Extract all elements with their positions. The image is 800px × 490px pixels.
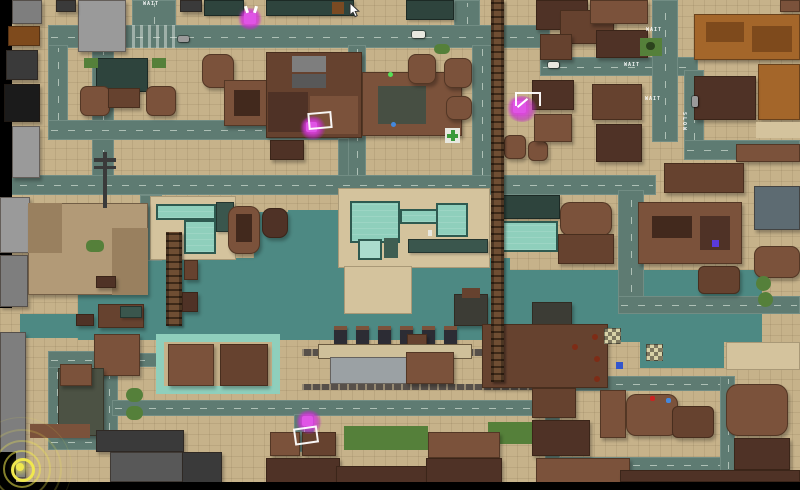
tile-bldg xyxy=(454,294,488,326)
tile-bldg xyxy=(532,302,572,326)
tile-rect xyxy=(462,288,480,298)
tile-rect xyxy=(616,362,623,369)
tile-bldg xyxy=(8,26,40,46)
tile-rect xyxy=(646,42,655,50)
tile-rect xyxy=(594,356,600,362)
tile-roof xyxy=(406,0,454,20)
tile-rect xyxy=(236,214,252,242)
tile-bldg xyxy=(0,255,28,307)
tile-bldg xyxy=(56,0,76,12)
car xyxy=(692,96,698,107)
tile-bldg xyxy=(446,96,472,120)
dock-road xyxy=(112,400,545,416)
tile-bldg xyxy=(534,114,572,142)
game-map-viewport[interactable]: WAITWAITSLOWWAITWAIT xyxy=(0,0,800,490)
tile-bldg xyxy=(76,314,94,326)
tile-rect xyxy=(391,122,396,127)
tile-rect xyxy=(752,26,792,52)
tile-bldg xyxy=(78,0,126,52)
tile-bldg xyxy=(758,64,800,120)
tile-bldg xyxy=(754,186,800,230)
tile-rect xyxy=(86,240,104,252)
tile-roof xyxy=(500,195,560,219)
tile-bldg xyxy=(532,388,576,418)
tile-bldg xyxy=(60,364,92,386)
tile-rect xyxy=(332,2,344,14)
mouse-cursor-icon xyxy=(348,3,362,19)
tile-checker xyxy=(604,328,621,344)
car xyxy=(548,62,559,68)
tile-crane xyxy=(378,326,391,346)
rail-line xyxy=(491,0,504,382)
tile-rect xyxy=(447,134,458,138)
tile-bldg xyxy=(600,390,626,438)
tile-bldg xyxy=(262,208,288,238)
tile-bldg xyxy=(698,266,740,294)
tile-bldg xyxy=(734,438,790,470)
park xyxy=(344,426,428,450)
tile-rect xyxy=(378,86,426,124)
tile-pool xyxy=(400,209,438,224)
tile-rect xyxy=(126,388,143,402)
pickup-marker-4[interactable] xyxy=(302,416,313,426)
tile-rect xyxy=(712,240,719,247)
tile-rect xyxy=(428,230,432,236)
tile-pool xyxy=(502,221,558,252)
tile-rect xyxy=(758,292,773,307)
tile-bldg xyxy=(96,430,184,452)
pier xyxy=(726,342,800,370)
tile-rect xyxy=(434,44,450,54)
road-marking-wait-1: WAIT xyxy=(645,97,661,102)
tile-rect xyxy=(28,203,62,253)
tile-road-v xyxy=(472,45,492,178)
road-marking-wait-4: WAIT xyxy=(624,63,640,68)
tile-bldg xyxy=(620,470,800,482)
tile-rect xyxy=(572,344,578,350)
pickup-marker-1[interactable] xyxy=(244,13,256,24)
tile-rect xyxy=(650,396,655,401)
tile-water xyxy=(20,314,82,338)
tile-road-v xyxy=(454,0,480,27)
tile-rect xyxy=(234,90,260,116)
pickup-marker-2-bracket[interactable] xyxy=(307,111,332,130)
tile-roof xyxy=(408,239,488,253)
tile-crosswalk xyxy=(132,25,176,48)
tile-bldg xyxy=(0,197,30,253)
tile-rect xyxy=(94,158,116,162)
road-marking-wait-0: WAIT xyxy=(646,28,662,33)
tile-bldg xyxy=(180,0,202,12)
tile-bldg xyxy=(6,50,38,80)
tile-bldg xyxy=(406,352,454,384)
tile-bldg xyxy=(504,135,526,159)
tile-bldg xyxy=(532,420,590,456)
tile-rect xyxy=(292,56,326,72)
tile-bldg xyxy=(726,384,788,436)
tile-bldg xyxy=(270,140,304,160)
tile-bldg xyxy=(672,406,714,438)
tile-pool xyxy=(436,203,468,237)
tile-rect xyxy=(756,122,800,138)
tile-roof xyxy=(204,0,244,16)
road-marking-wait-3: WAIT xyxy=(143,2,159,7)
tile-bldg xyxy=(110,452,184,482)
pickup-marker-4-bracket[interactable] xyxy=(293,425,319,445)
tile-bldg xyxy=(182,292,198,312)
tile-rect xyxy=(384,238,398,258)
tile-rect xyxy=(126,406,143,420)
tile-bldg xyxy=(444,58,472,88)
tile-rect xyxy=(666,398,671,403)
tile-rect xyxy=(292,74,326,88)
tile-bldg xyxy=(12,0,42,24)
tile-bldg xyxy=(80,86,110,116)
beacon xyxy=(16,463,24,471)
tile-bldg xyxy=(596,124,642,162)
tile-checker xyxy=(646,344,663,361)
tile-bldg xyxy=(780,0,800,12)
tile-bldg xyxy=(408,54,436,84)
tile-roof xyxy=(120,306,142,318)
tile-crane xyxy=(444,326,457,346)
tile-road-v xyxy=(652,0,678,142)
tile-bldg xyxy=(736,144,800,162)
tile-bldg xyxy=(220,344,268,386)
car xyxy=(412,31,425,38)
tile-rect xyxy=(152,58,166,68)
tile-bldg xyxy=(184,260,198,280)
tile-bldg xyxy=(528,141,548,161)
tile-bldg xyxy=(146,86,176,116)
tile-crane xyxy=(334,326,347,346)
tile-pool xyxy=(184,220,216,254)
tile-bldg xyxy=(4,84,40,122)
road-marking-slow-2: SLOW xyxy=(681,112,686,132)
tile-bldg xyxy=(536,458,630,484)
tile-rect xyxy=(756,276,771,291)
tile-rect xyxy=(388,72,393,77)
tile-bldg xyxy=(590,0,648,24)
tile-rect xyxy=(94,166,116,169)
bottom-bar xyxy=(0,482,800,490)
cross-street xyxy=(0,175,656,195)
tile-rect xyxy=(706,22,744,42)
car xyxy=(178,36,189,42)
tile-rect xyxy=(594,376,600,382)
tile-bldg xyxy=(428,432,500,458)
tile-pool xyxy=(156,204,216,220)
tile-bldg xyxy=(12,126,40,178)
tile-bldg xyxy=(664,163,744,193)
tile-crane xyxy=(356,326,369,346)
tile-pool xyxy=(358,239,382,260)
tile-bldg xyxy=(560,202,612,236)
tile-rect xyxy=(112,228,148,295)
tile-deck xyxy=(344,266,412,314)
tile-rect xyxy=(592,334,598,340)
tile-bldg xyxy=(108,88,140,108)
tile-rect xyxy=(84,58,98,68)
swimming-pool xyxy=(350,201,400,243)
tile-rect xyxy=(652,216,692,238)
tile-bldg xyxy=(540,34,572,60)
tile-bldg xyxy=(754,246,800,278)
tile-bldg xyxy=(694,76,756,120)
tile-bldg xyxy=(558,234,614,264)
dock-crane-tower xyxy=(166,232,182,326)
tile-bldg xyxy=(96,276,116,288)
tile-bldg xyxy=(592,84,642,120)
tile-bldg xyxy=(168,344,214,386)
